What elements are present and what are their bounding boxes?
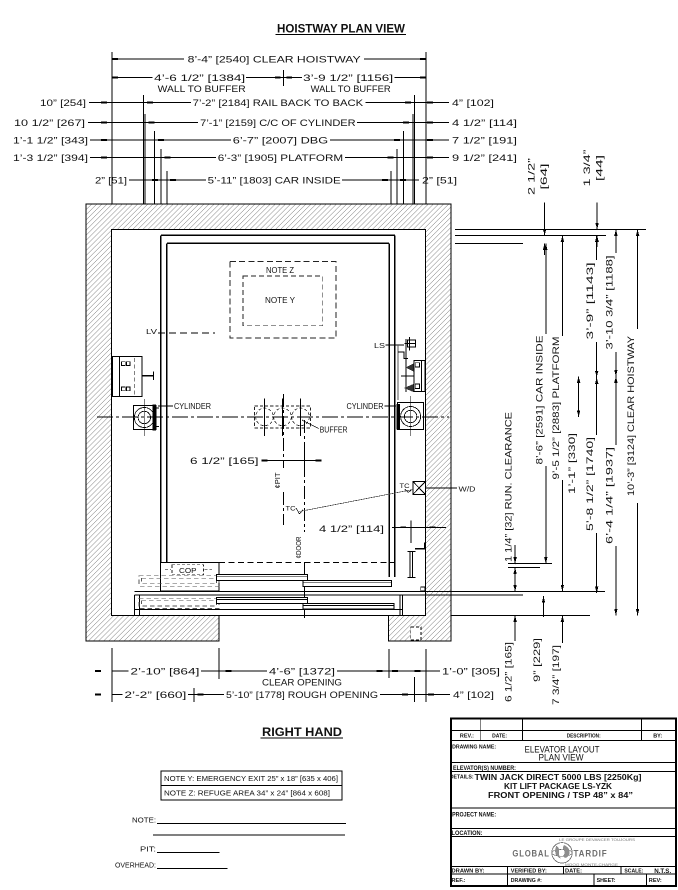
- svg-text:4” [102]: 4” [102]: [453, 690, 494, 700]
- svg-text:HOISTWAY PLAN VIEW: HOISTWAY PLAN VIEW: [277, 24, 405, 36]
- svg-text:WALL TO BUFFER: WALL TO BUFFER: [311, 84, 392, 94]
- svg-text:PLAN VIEW: PLAN VIEW: [539, 753, 584, 763]
- svg-text:DETAILS:: DETAILS:: [450, 775, 474, 781]
- svg-text:9 1/2” [241]: 9 1/2” [241]: [452, 153, 517, 163]
- svg-text:LE GROUPE DEVANCER TOUJOURS: LE GROUPE DEVANCER TOUJOURS: [559, 837, 635, 842]
- svg-text:4 1/2” [114]: 4 1/2” [114]: [319, 524, 384, 534]
- svg-text:1’-1 1/2” [343]: 1’-1 1/2” [343]: [13, 135, 88, 145]
- svg-text:[44]: [44]: [595, 155, 605, 181]
- svg-text:ELEVATOR(S) NUMBER:: ELEVATOR(S) NUMBER:: [453, 766, 516, 772]
- svg-text:DRAWN BY:: DRAWN BY:: [452, 868, 485, 874]
- svg-text:7’-1” [2159] C/C OF CYLINDER: 7’-1” [2159] C/C OF CYLINDER: [200, 118, 356, 128]
- svg-text:LOCATION:: LOCATION:: [452, 831, 483, 837]
- svg-text:2 1/2”: 2 1/2”: [527, 158, 537, 195]
- svg-text:4’-6” [1372]: 4’-6” [1372]: [269, 666, 335, 676]
- svg-text:3’-9 1/2” [1156]: 3’-9 1/2” [1156]: [303, 73, 393, 83]
- svg-text:6 1/2” [165]: 6 1/2” [165]: [504, 642, 514, 702]
- svg-text:CYLINDER: CYLINDER: [174, 402, 211, 411]
- svg-text:9’-5 1/2” [2883] PLATFORM: 9’-5 1/2” [2883] PLATFORM: [551, 337, 561, 480]
- svg-text:CYLINDER: CYLINDER: [347, 402, 384, 411]
- svg-text:TARDIF: TARDIF: [574, 848, 608, 859]
- svg-text:2” [51]: 2” [51]: [95, 175, 127, 185]
- svg-text:REF.:: REF.:: [452, 878, 466, 884]
- svg-text:LS: LS: [374, 341, 385, 350]
- svg-text:REV:: REV:: [649, 878, 662, 884]
- svg-text:6 1/2” [165]: 6 1/2” [165]: [190, 456, 259, 466]
- svg-text:SHEET:: SHEET:: [597, 878, 616, 884]
- svg-text:GLOBAL: GLOBAL: [512, 848, 549, 859]
- svg-text:LV: LV: [146, 327, 157, 336]
- svg-text:10 1/2” [267]: 10 1/2” [267]: [14, 118, 85, 128]
- svg-text:BUFFER: BUFFER: [320, 425, 348, 434]
- svg-text:[64]: [64]: [539, 164, 549, 190]
- svg-text:DATE:: DATE:: [492, 734, 507, 740]
- svg-text:4” [102]: 4” [102]: [452, 98, 494, 108]
- svg-text:7’-2” [2184] RAIL BACK TO BACK: 7’-2” [2184] RAIL BACK TO BACK: [193, 98, 364, 108]
- svg-text:3’-10 3/4” [1188]: 3’-10 3/4” [1188]: [604, 256, 614, 350]
- svg-text:8’-6” [2591] CAR INSIDE: 8’-6” [2591] CAR INSIDE: [534, 336, 544, 465]
- svg-text:2’-2” [660]: 2’-2” [660]: [124, 690, 186, 700]
- svg-text:8’-4” [2540] CLEAR HOISTWAY: 8’-4” [2540] CLEAR HOISTWAY: [188, 54, 361, 64]
- svg-text:10” [254]: 10” [254]: [40, 98, 86, 108]
- svg-text:BY:: BY:: [653, 734, 662, 740]
- svg-text:MOOG MONTE-CHARGE: MOOG MONTE-CHARGE: [565, 862, 618, 867]
- svg-text:5’-10” [1778] ROUGH OPENING: 5’-10” [1778] ROUGH OPENING: [226, 690, 378, 700]
- svg-text:4’-6 1/2” [1384]: 4’-6 1/2” [1384]: [154, 73, 245, 83]
- svg-text:6’-4 1/4” [1937]: 6’-4 1/4” [1937]: [604, 447, 614, 544]
- svg-text:1’-3 1/2” [394]: 1’-3 1/2” [394]: [13, 153, 88, 163]
- svg-text:PROJECT NAME:: PROJECT NAME:: [452, 813, 496, 819]
- svg-text:WALL TO BUFFER: WALL TO BUFFER: [158, 84, 247, 94]
- svg-text:DRAWING NAME:: DRAWING NAME:: [452, 744, 496, 750]
- svg-text:1’-1” [330]: 1’-1” [330]: [567, 433, 577, 494]
- svg-text:COP: COP: [179, 568, 197, 575]
- svg-text:FRONT OPENING / TSP 48” x 84”: FRONT OPENING / TSP 48” x 84”: [488, 791, 633, 800]
- svg-text:CLEAR OPENING: CLEAR OPENING: [262, 678, 342, 688]
- svg-text:TC: TC: [400, 483, 410, 490]
- svg-text:5’-11” [1803] CAR INSIDE: 5’-11” [1803] CAR INSIDE: [208, 175, 341, 185]
- svg-text:6’-7” [2007] DBG: 6’-7” [2007] DBG: [233, 135, 328, 145]
- svg-text:KIT LIFT PACKAGE LS-YZK: KIT LIFT PACKAGE LS-YZK: [504, 782, 612, 791]
- svg-text:7 1/2” [191]: 7 1/2” [191]: [452, 135, 517, 145]
- svg-text:3’-9” [1143]: 3’-9” [1143]: [585, 263, 595, 340]
- svg-text:TC: TC: [286, 506, 296, 513]
- svg-text:NOTE:: NOTE:: [132, 815, 156, 824]
- svg-text:REV.:: REV.:: [460, 734, 474, 740]
- svg-text:¢PIT: ¢PIT: [275, 472, 282, 489]
- svg-text:RIGHT HAND: RIGHT HAND: [262, 727, 342, 739]
- svg-text:1’-0” [305]: 1’-0” [305]: [442, 666, 500, 676]
- svg-text:4 1/2” [114]: 4 1/2” [114]: [452, 118, 517, 128]
- svg-text:5’-8 1/2” [1740]: 5’-8 1/2” [1740]: [585, 437, 595, 531]
- svg-text:N.T.S.: N.T.S.: [654, 868, 671, 875]
- svg-text:SCALE:: SCALE:: [624, 868, 643, 874]
- svg-text:10’-3” [3124] CLEAR HOISTWAY: 10’-3” [3124] CLEAR HOISTWAY: [626, 336, 636, 496]
- svg-text:7 3/4” [197]: 7 3/4” [197]: [551, 645, 561, 705]
- svg-text:NOTE Z: REFUGE AREA 34” x 24”: NOTE Z: REFUGE AREA 34” x 24” [864 x 608…: [164, 791, 330, 798]
- svg-text:DESCRIPTION:: DESCRIPTION:: [567, 734, 601, 740]
- svg-text:6’-3” [1905] PLATFORM: 6’-3” [1905] PLATFORM: [218, 153, 343, 163]
- svg-text:NOTE Z: NOTE Z: [266, 266, 294, 275]
- svg-text:DRAWING #:: DRAWING #:: [511, 878, 542, 884]
- svg-text:2’-10” [864]: 2’-10” [864]: [130, 666, 199, 676]
- svg-text:NOTE Y: EMERGENCY EXIT 25” x 1: NOTE Y: EMERGENCY EXIT 25” x 18” [635 x …: [164, 776, 338, 783]
- svg-text:¢DOOR: ¢DOOR: [296, 537, 303, 559]
- svg-text:W/D: W/D: [459, 485, 477, 494]
- svg-text:1 1/4” [32] RUN. CLEARANCE: 1 1/4” [32] RUN. CLEARANCE: [504, 412, 514, 562]
- svg-text:TWIN JACK DIRECT 5000 LBS [225: TWIN JACK DIRECT 5000 LBS [2250Kg]: [475, 773, 642, 782]
- svg-text:OVERHEAD:: OVERHEAD:: [115, 860, 156, 869]
- svg-text:9” [229]: 9” [229]: [532, 638, 542, 682]
- svg-text:NOTE Y: NOTE Y: [265, 296, 296, 305]
- svg-text:DATE:: DATE:: [565, 868, 582, 874]
- svg-text:PIT:: PIT:: [140, 844, 156, 853]
- svg-text:2” [51]: 2” [51]: [422, 175, 457, 185]
- svg-text:VERIFIED BY:: VERIFIED BY:: [511, 868, 547, 874]
- svg-text:1 3/4”: 1 3/4”: [582, 149, 592, 186]
